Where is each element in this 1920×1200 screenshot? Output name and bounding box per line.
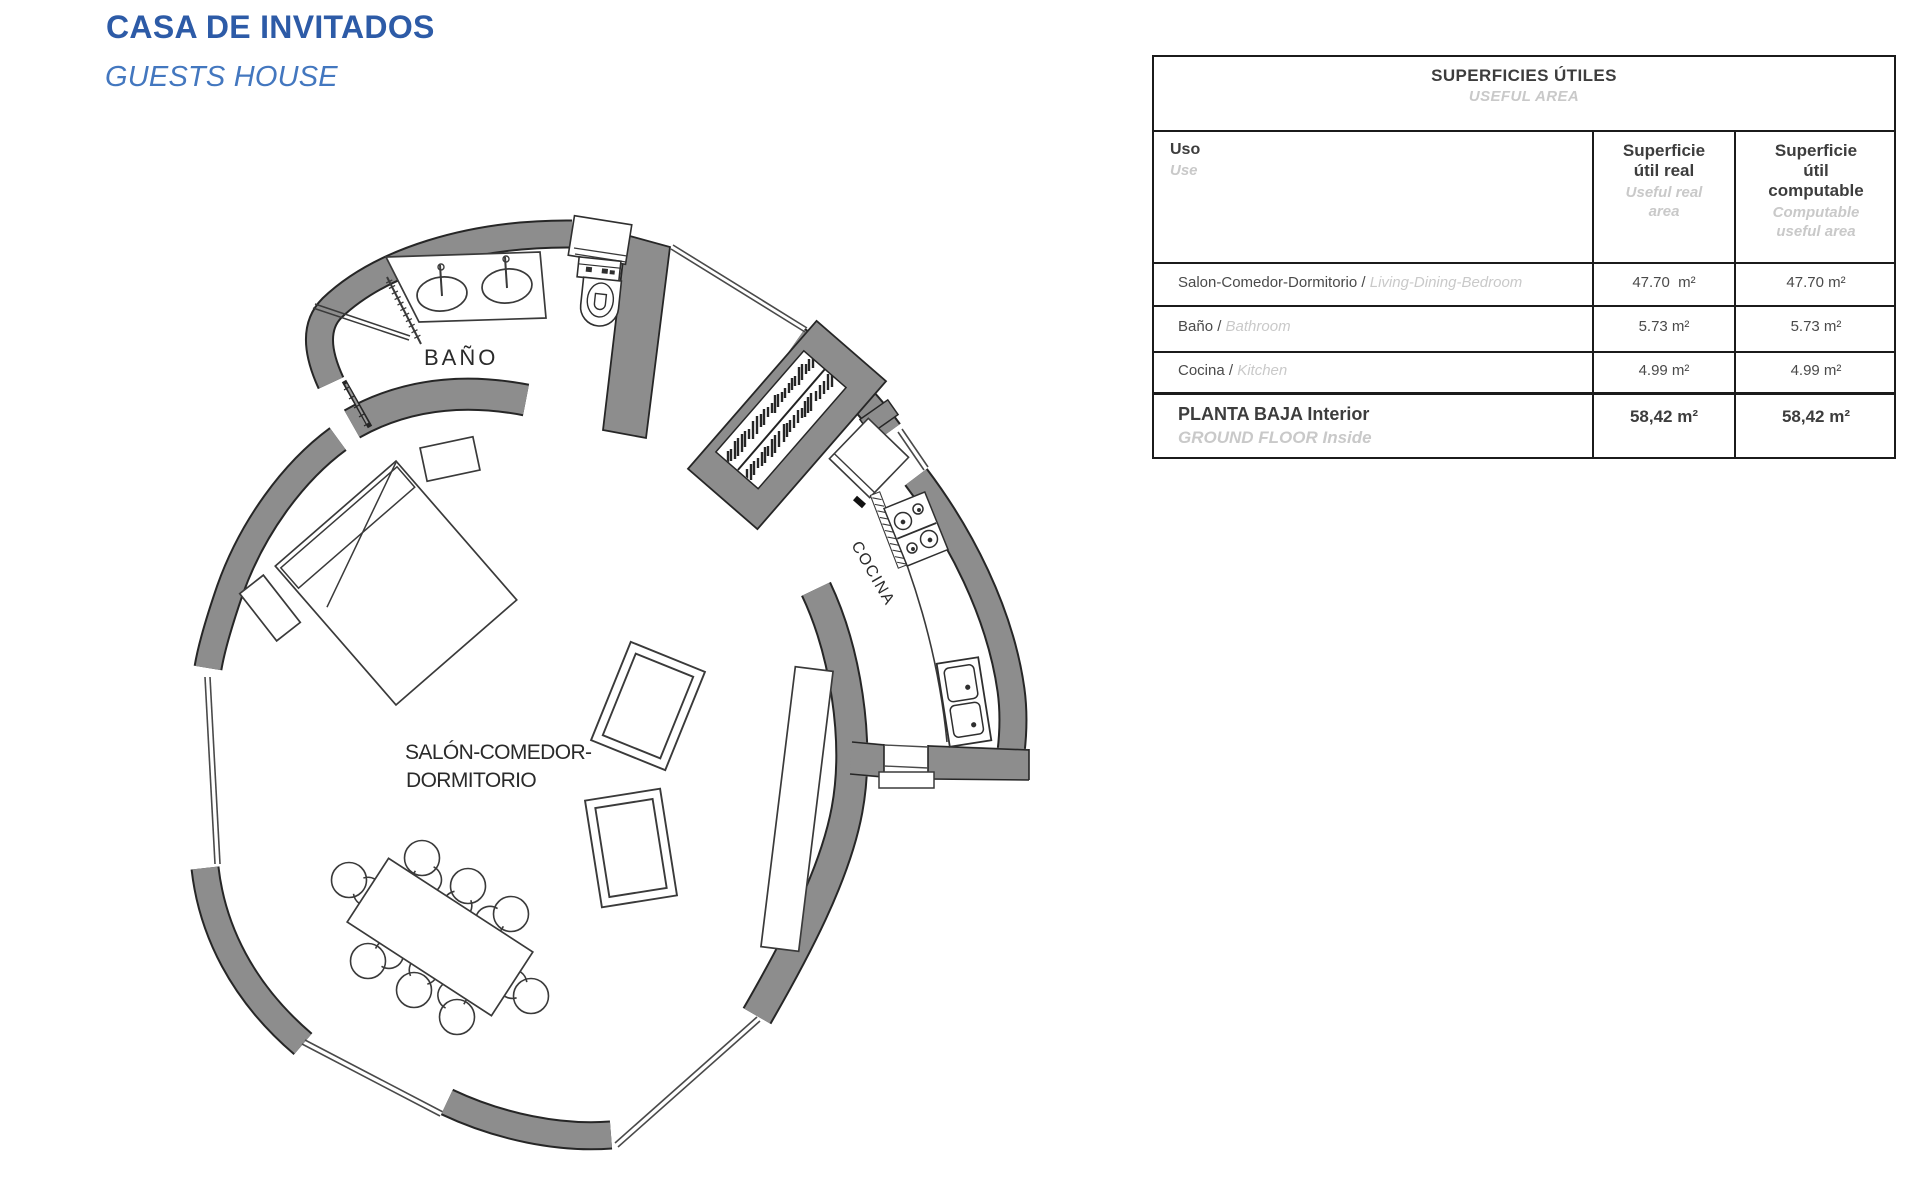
svg-text:COCINA: COCINA: [848, 539, 898, 609]
svg-text:SALÓN-COMEDOR-: SALÓN-COMEDOR-: [405, 741, 592, 764]
svg-text:DORMITORIO: DORMITORIO: [406, 769, 536, 792]
svg-text:BAÑO: BAÑO: [424, 345, 498, 370]
